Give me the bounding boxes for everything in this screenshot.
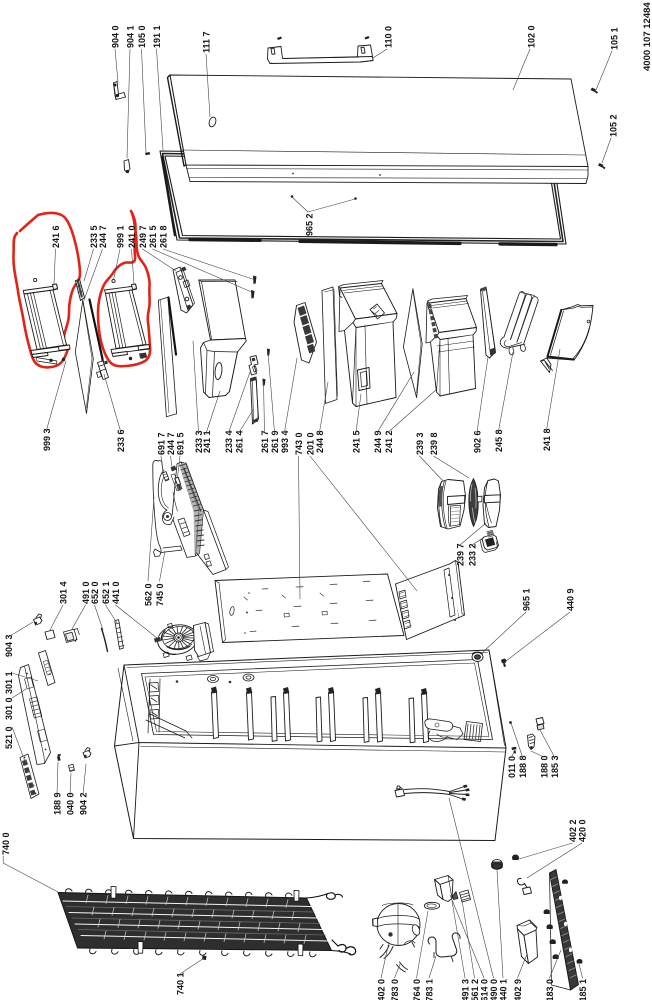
svg-text:241 6: 241 6	[51, 225, 61, 248]
svg-text:904 1: 904 1	[125, 25, 135, 48]
svg-text:233 4: 233 4	[224, 430, 234, 453]
svg-text:239 3: 239 3	[415, 432, 425, 455]
svg-text:249 7: 249 7	[138, 225, 148, 248]
svg-text:201 0: 201 0	[305, 432, 315, 455]
svg-text:241 5: 241 5	[351, 430, 361, 453]
svg-text:783 0: 783 0	[390, 979, 400, 1000]
svg-text:188 9: 188 9	[52, 792, 62, 815]
svg-text:185 1: 185 1	[578, 979, 588, 1000]
svg-text:102 0: 102 0	[526, 25, 536, 48]
svg-text:614 0: 614 0	[479, 979, 489, 1000]
svg-text:105 2: 105 2	[608, 114, 618, 137]
svg-text:261 4: 261 4	[235, 430, 245, 453]
svg-text:239 7: 239 7	[455, 543, 465, 566]
svg-text:402 0: 402 0	[376, 979, 386, 1000]
svg-text:244 9: 244 9	[373, 430, 383, 453]
svg-text:261 5: 261 5	[148, 225, 158, 248]
svg-text:245 8: 245 8	[494, 429, 504, 452]
svg-text:420 0: 420 0	[577, 819, 587, 842]
svg-text:740 1: 740 1	[175, 972, 185, 995]
svg-text:745 0: 745 0	[155, 583, 165, 606]
svg-text:743 0: 743 0	[294, 432, 304, 455]
svg-text:111 7: 111 7	[201, 31, 211, 53]
svg-text:993 4: 993 4	[280, 430, 290, 453]
svg-text:233 6: 233 6	[116, 429, 126, 452]
svg-text:691 5: 691 5	[175, 432, 185, 455]
svg-text:965 2: 965 2	[304, 213, 314, 236]
svg-text:301 1: 301 1	[4, 671, 14, 694]
svg-text:521 0: 521 0	[4, 726, 14, 749]
svg-text:241 2: 241 2	[384, 430, 394, 453]
svg-text:188 8: 188 8	[518, 755, 528, 778]
svg-text:904 0: 904 0	[110, 25, 120, 48]
svg-text:105 0: 105 0	[137, 25, 147, 48]
svg-text:301 4: 301 4	[58, 581, 68, 604]
svg-text:402 9: 402 9	[513, 979, 523, 1000]
svg-text:652 1: 652 1	[101, 581, 111, 604]
svg-text:110 0: 110 0	[383, 26, 393, 48]
svg-text:491 3: 491 3	[460, 979, 470, 1000]
svg-text:244 8: 244 8	[315, 430, 325, 453]
svg-text:241 1: 241 1	[202, 430, 212, 453]
svg-text:999 1: 999 1	[115, 225, 125, 248]
svg-text:261 9: 261 9	[270, 430, 280, 453]
svg-text:904 2: 904 2	[78, 792, 88, 815]
svg-text:233 2: 233 2	[467, 543, 477, 566]
svg-text:561 2: 561 2	[470, 979, 480, 1000]
svg-text:261 7: 261 7	[260, 430, 270, 453]
svg-text:241 0: 241 0	[127, 225, 137, 248]
svg-text:188 0: 188 0	[539, 755, 549, 778]
svg-text:239 8: 239 8	[429, 432, 439, 455]
svg-text:244 7: 244 7	[98, 225, 108, 248]
svg-text:440 1: 440 1	[498, 979, 508, 1000]
svg-text:440 9: 440 9	[565, 588, 575, 611]
svg-text:261 8: 261 8	[158, 225, 168, 248]
svg-text:902 6: 902 6	[472, 430, 482, 453]
svg-text:301 0: 301 0	[4, 697, 14, 720]
svg-text:244 7: 244 7	[166, 432, 176, 455]
svg-text:183 0: 183 0	[545, 979, 555, 1000]
svg-text:490 0: 490 0	[489, 979, 499, 1000]
svg-text:783 1: 783 1	[424, 979, 434, 1000]
svg-text:652 0: 652 0	[90, 581, 100, 604]
svg-text:740 0: 740 0	[1, 832, 11, 855]
svg-text:011 0: 011 0	[507, 756, 517, 778]
svg-text:4000 107 12484: 4000 107 12484	[642, 2, 652, 71]
svg-text:105 1: 105 1	[609, 27, 619, 50]
svg-text:241 8: 241 8	[542, 428, 552, 451]
svg-text:691 7: 691 7	[156, 432, 166, 455]
svg-text:185 3: 185 3	[550, 755, 560, 778]
svg-text:441 0: 441 0	[111, 581, 121, 604]
svg-text:402 2: 402 2	[568, 819, 578, 842]
svg-text:764 0: 764 0	[412, 979, 422, 1000]
svg-text:965 1: 965 1	[521, 588, 531, 611]
svg-text:040 0: 040 0	[65, 792, 75, 815]
svg-text:904 3: 904 3	[4, 634, 14, 657]
svg-text:999 3: 999 3	[42, 428, 52, 451]
svg-text:562 0: 562 0	[143, 583, 153, 606]
svg-text:191 1: 191 1	[152, 25, 162, 48]
